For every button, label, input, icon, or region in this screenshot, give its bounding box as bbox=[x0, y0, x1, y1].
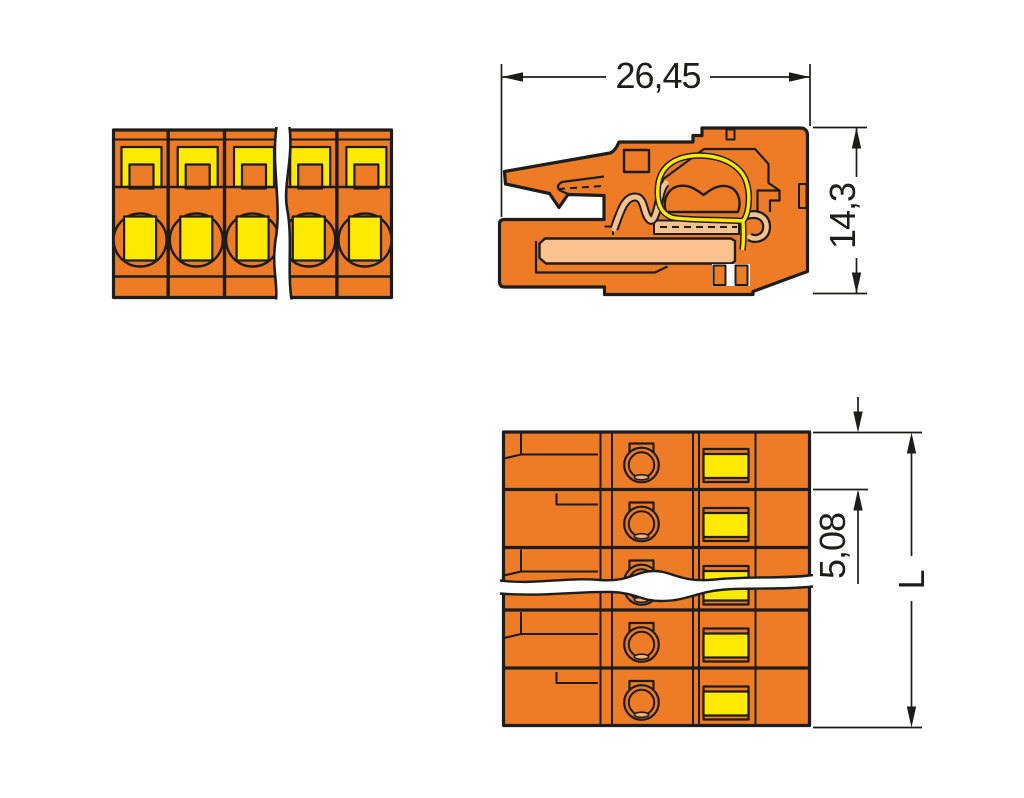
dim-label-total-height: 14,3 bbox=[822, 183, 863, 249]
connector-drawing: 26,45 14,3 bbox=[0, 0, 1024, 798]
break-line bbox=[274, 127, 291, 300]
dim-label-pole-pitch: 5,08 bbox=[812, 513, 853, 579]
top-view: 5,08 L bbox=[500, 397, 932, 728]
side-cross-section-view: 26,45 14,3 bbox=[500, 55, 868, 295]
dim-label-total-width: 26,45 bbox=[615, 55, 700, 96]
dim-pole-pitch: 5,08 bbox=[812, 397, 922, 584]
contact-foot bbox=[736, 266, 748, 286]
front-view bbox=[112, 127, 393, 300]
technical-drawing-canvas: 26,45 14,3 bbox=[0, 0, 1024, 798]
dim-total-height: 14,3 bbox=[813, 128, 867, 294]
dim-label-total-length: L bbox=[891, 570, 932, 589]
contact-foot bbox=[714, 266, 726, 286]
wire-cavity bbox=[540, 239, 736, 264]
